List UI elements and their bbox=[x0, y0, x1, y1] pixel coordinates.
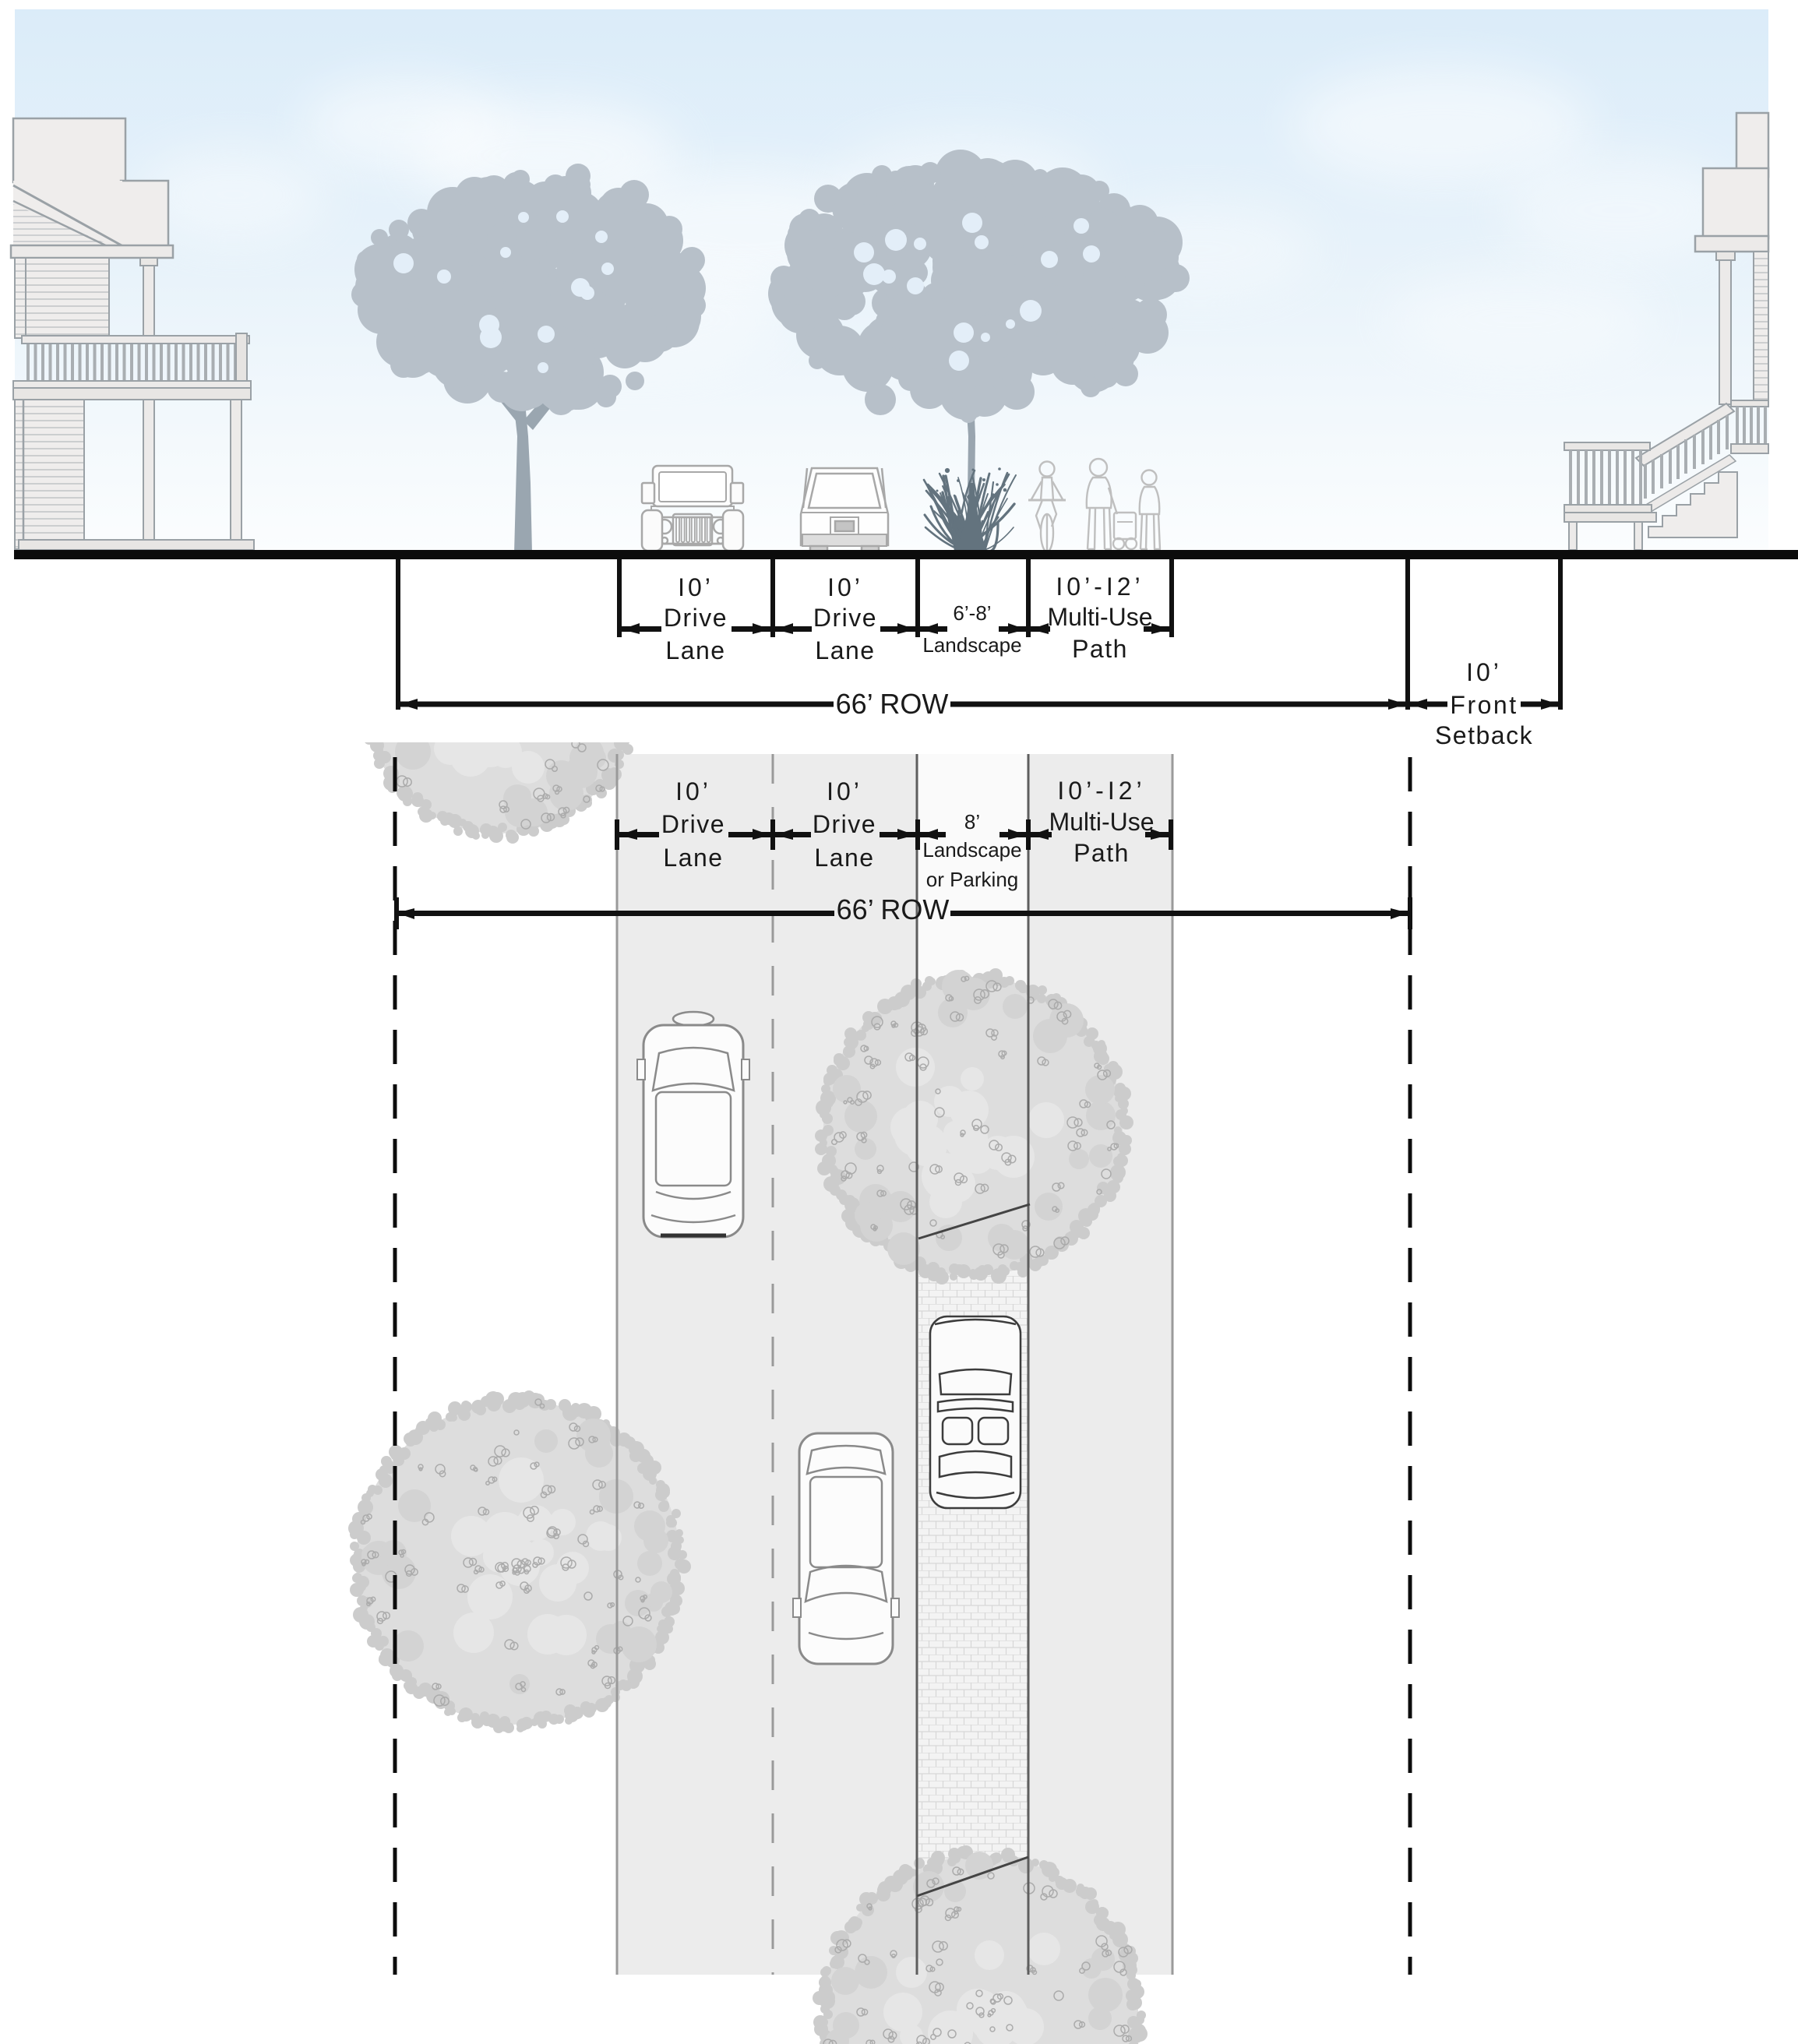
svg-text:I0’: I0’ bbox=[675, 777, 711, 805]
svg-text:Multi-Use: Multi-Use bbox=[1047, 603, 1152, 631]
svg-text:66’ ROW: 66’ ROW bbox=[836, 688, 949, 720]
svg-text:I0’: I0’ bbox=[827, 777, 862, 805]
svg-text:66’ ROW: 66’ ROW bbox=[837, 893, 950, 925]
svg-text:Path: Path bbox=[1074, 839, 1130, 867]
svg-text:Path: Path bbox=[1072, 635, 1128, 663]
svg-text:Lane: Lane bbox=[663, 844, 723, 872]
svg-text:I0’: I0’ bbox=[827, 573, 863, 601]
svg-text:Landscape: Landscape bbox=[922, 838, 1021, 862]
svg-text:6’-8’: 6’-8’ bbox=[953, 601, 991, 625]
svg-text:Drive: Drive bbox=[664, 604, 728, 632]
svg-text:I0’: I0’ bbox=[678, 573, 714, 601]
svg-text:Drive: Drive bbox=[813, 810, 876, 838]
svg-text:Landscape: Landscape bbox=[922, 633, 1021, 657]
svg-text:Multi-Use: Multi-Use bbox=[1049, 808, 1154, 836]
svg-text:Lane: Lane bbox=[665, 636, 725, 664]
svg-text:Front: Front bbox=[1450, 691, 1518, 719]
svg-text:or Parking: or Parking bbox=[926, 868, 1019, 891]
svg-text:Lane: Lane bbox=[815, 636, 875, 664]
svg-text:I0’: I0’ bbox=[1466, 658, 1502, 686]
svg-text:Setback: Setback bbox=[1435, 721, 1533, 749]
svg-text:I0’-I2’: I0’-I2’ bbox=[1057, 777, 1145, 805]
svg-text:Drive: Drive bbox=[661, 810, 725, 838]
svg-text:8’: 8’ bbox=[964, 810, 980, 833]
svg-text:Lane: Lane bbox=[814, 844, 874, 872]
svg-text:Drive: Drive bbox=[813, 604, 877, 632]
svg-text:I0’-I2’: I0’-I2’ bbox=[1056, 573, 1144, 601]
